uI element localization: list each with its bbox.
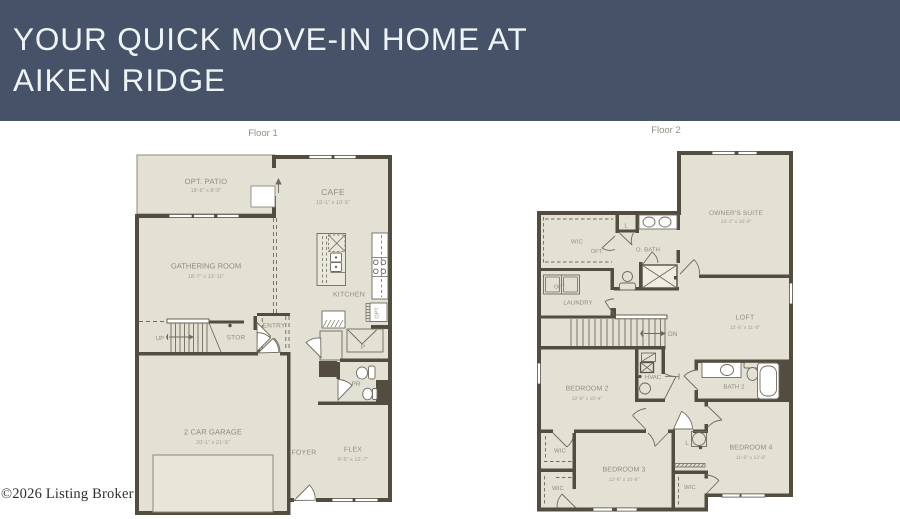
svg-text:ENTRY: ENTRY: [263, 323, 286, 330]
svg-text:WIC: WIC: [554, 448, 567, 455]
svg-text:WIC: WIC: [571, 239, 584, 246]
svg-text:PR: PR: [351, 381, 360, 388]
svg-text:18'-6" x 8'-0": 18'-6" x 8'-0": [191, 188, 222, 194]
svg-text:P: P: [361, 344, 365, 351]
svg-text:GATHERING ROOM: GATHERING ROOM: [171, 262, 241, 271]
svg-text:12'-6" x 10'-4": 12'-6" x 10'-4": [572, 396, 603, 402]
svg-text:OPT.: OPT.: [554, 285, 567, 291]
svg-text:HVAC: HVAC: [645, 374, 662, 381]
svg-text:BEDROOM 2: BEDROOM 2: [566, 386, 609, 393]
svg-text:OPT. PATIO: OPT. PATIO: [185, 177, 228, 186]
svg-text:BEDROOM 3: BEDROOM 3: [603, 467, 646, 474]
svg-text:13'-1" x 16'-0": 13'-1" x 16'-0": [721, 219, 752, 225]
svg-text:DN: DN: [668, 331, 678, 338]
svg-text:LOFT: LOFT: [735, 315, 755, 322]
svg-text:FLEX: FLEX: [344, 447, 362, 454]
svg-text:12'-6" x 11'-0": 12'-6" x 11'-0": [730, 325, 761, 331]
svg-text:Floor 2: Floor 2: [651, 125, 681, 136]
svg-text:15'-1" x 10'-5": 15'-1" x 10'-5": [316, 200, 350, 206]
svg-text:OPT.: OPT.: [591, 249, 604, 255]
svg-text:BEDROOM 4: BEDROOM 4: [730, 445, 773, 452]
svg-text:11'-0" x 12'-5": 11'-0" x 12'-5": [736, 455, 767, 461]
svg-text:STOR: STOR: [227, 335, 246, 342]
svg-text:WIC: WIC: [552, 485, 565, 492]
svg-text:KITCHEN: KITCHEN: [333, 292, 365, 299]
svg-text:Floor 1: Floor 1: [248, 128, 278, 139]
svg-text:OWNER'S SUITE: OWNER'S SUITE: [709, 210, 764, 217]
svg-text:20'-1" x 21'-5": 20'-1" x 21'-5": [196, 440, 230, 446]
svg-text:CAFE: CAFE: [321, 187, 345, 197]
svg-text:BATH 2: BATH 2: [723, 384, 745, 391]
svg-text:FOYER: FOYER: [291, 450, 316, 457]
svg-text:UP: UP: [156, 335, 164, 342]
svg-text:9'-5" x 12'-7": 9'-5" x 12'-7": [338, 457, 369, 463]
svg-text:O. BATH: O. BATH: [636, 247, 660, 254]
svg-text:WIC: WIC: [684, 484, 697, 491]
svg-text:12'-6" x 10'-6": 12'-6" x 10'-6": [609, 477, 640, 483]
svg-text:18'-7" x 13'-11": 18'-7" x 13'-11": [188, 274, 225, 280]
svg-text:LAUNDRY: LAUNDRY: [563, 300, 592, 307]
svg-text:2 CAR GARAGE: 2 CAR GARAGE: [184, 428, 242, 437]
svg-text:OPT.: OPT.: [375, 306, 381, 319]
